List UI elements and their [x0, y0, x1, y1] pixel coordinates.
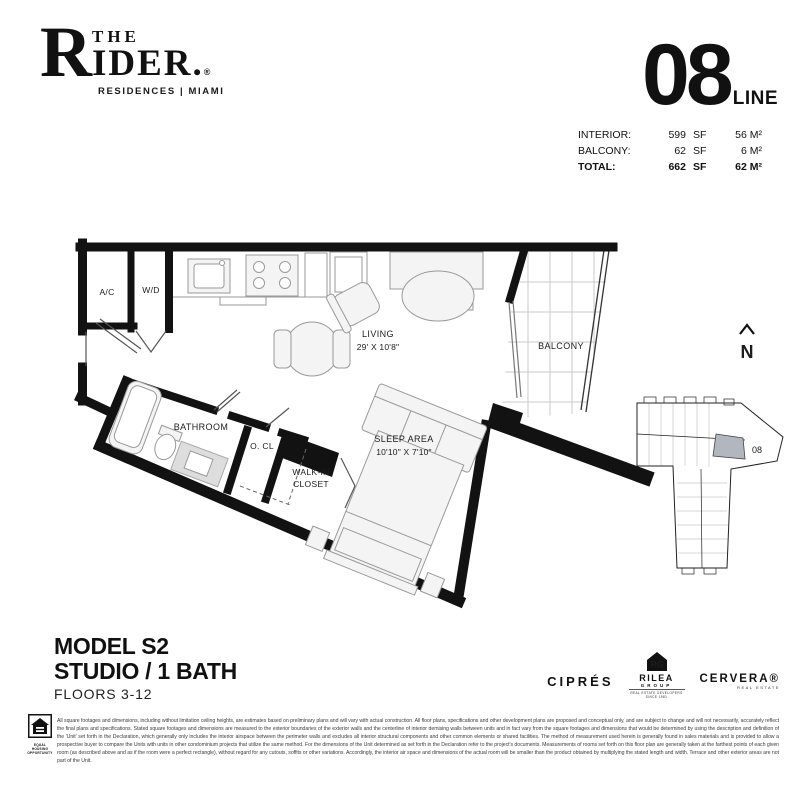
label-balcony: BALCONY [538, 341, 584, 351]
equal-housing-logo: EQUAL HOUSING OPPORTUNITY [27, 714, 53, 756]
disclaimer-text: All square footages and dimensions, incl… [57, 717, 779, 765]
rilea-house-icon: RG [644, 650, 670, 672]
label-bathroom: BATHROOM [174, 422, 229, 432]
label-living: LIVING [362, 329, 394, 339]
keyplan: 08 [637, 397, 783, 574]
cipres-logo: CIPRÉS [547, 674, 613, 699]
label-walkin-1: WALK-IN [292, 467, 329, 477]
dining-chair [333, 330, 350, 368]
north-arrow-icon: N [740, 325, 754, 362]
keyplan-unit-highlight [713, 434, 745, 459]
cervera-tagline: REAL ESTATE [737, 685, 780, 690]
dining-table [285, 322, 339, 376]
model-type: STUDIO / 1 BATH [54, 659, 237, 684]
label-sleep-area: SLEEP AREA [374, 434, 433, 444]
balcony-railing [581, 250, 609, 412]
svg-text:RG: RG [650, 659, 663, 669]
label-ocl: O. CL [250, 441, 274, 451]
model-name: MODEL S2 [54, 634, 237, 659]
cervera-name: CERVERA® [700, 673, 781, 685]
label-living-dims: 29' X 10'8" [357, 342, 400, 352]
cervera-logo: CERVERA® REAL ESTATE [700, 673, 781, 699]
developer-logos: CIPRÉS RG RILEA GROUP REAL ESTATE DEVELO… [547, 650, 780, 699]
model-info: MODEL S2 STUDIO / 1 BATH FLOORS 3-12 [54, 634, 237, 702]
rilea-logo: RG RILEA GROUP REAL ESTATE DEVELOPERS SI… [629, 650, 685, 699]
equal-housing-caption: EQUAL HOUSING OPPORTUNITY [27, 744, 53, 756]
rilea-group: GROUP [641, 683, 673, 688]
label-wd: W/D [142, 285, 159, 295]
rilea-name: RILEA [639, 673, 674, 683]
label-sleep-dims: 10'10" X 7'10" [376, 447, 432, 457]
furniture [106, 252, 487, 603]
rilea-tagline: REAL ESTATE DEVELOPERS SINCE 1981 [629, 689, 685, 699]
model-floors: FLOORS 3-12 [54, 687, 237, 702]
label-ac: A/C [99, 287, 114, 297]
equal-housing-icon [28, 714, 52, 738]
stove [246, 255, 298, 296]
label-walkin-2: CLOSET [293, 479, 329, 489]
coffee-table [402, 271, 474, 321]
dining-chair [274, 330, 291, 368]
balcony-sliding-door [509, 301, 521, 398]
keyplan-unit-label: 08 [752, 445, 762, 455]
floorplan-sheet: R THE IDER.® RESIDENCES | MIAMI 08LINE I… [0, 0, 800, 800]
balcony-grid [495, 248, 615, 422]
north-label: N [741, 342, 754, 362]
